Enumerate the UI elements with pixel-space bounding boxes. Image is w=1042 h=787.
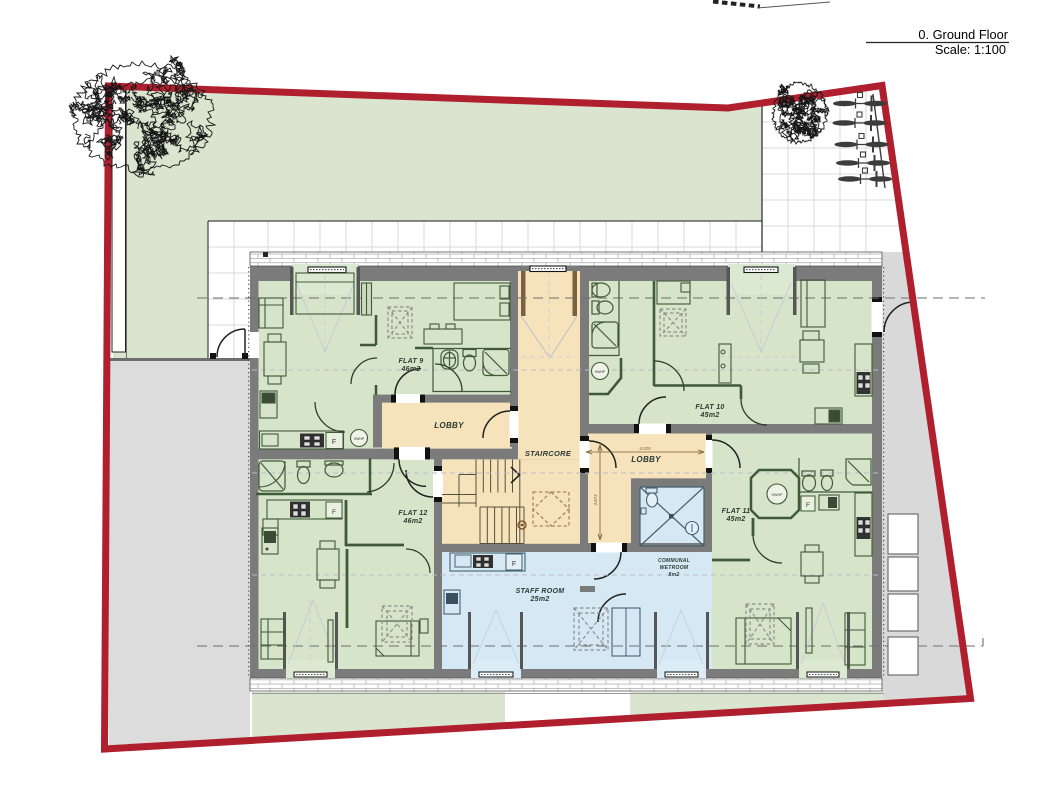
svg-text:LOBBY: LOBBY <box>434 421 464 430</box>
svg-text:HWHP: HWHP <box>772 493 784 497</box>
svg-text:FLAT 9: FLAT 9 <box>398 358 423 365</box>
svg-text:F: F <box>512 561 516 568</box>
svg-text:Scale: 1:100: Scale: 1:100 <box>935 42 1006 57</box>
svg-text:HWHP: HWHP <box>595 370 606 374</box>
svg-text:LOBBY: LOBBY <box>631 455 661 464</box>
svg-text:F: F <box>806 502 810 509</box>
svg-text:0. Ground Floor: 0. Ground Floor <box>918 27 1008 42</box>
svg-text:46m2: 46m2 <box>400 366 420 373</box>
svg-text:STAIRCORE: STAIRCORE <box>525 449 572 458</box>
svg-text:STAFF ROOM: STAFF ROOM <box>516 588 565 595</box>
svg-text:3.874: 3.874 <box>593 494 598 506</box>
svg-text:FLAT 11: FLAT 11 <box>722 508 751 515</box>
svg-text:8m2: 8m2 <box>669 572 680 578</box>
svg-text:45m2: 45m2 <box>725 516 745 523</box>
svg-text:HWHP: HWHP <box>354 437 365 441</box>
svg-text:COMMUNAL: COMMUNAL <box>658 558 690 564</box>
svg-text:F: F <box>332 439 336 446</box>
svg-text:4.025: 4.025 <box>639 446 651 451</box>
svg-text:F: F <box>332 509 336 516</box>
svg-text:46m2: 46m2 <box>402 518 422 525</box>
svg-text:45m2: 45m2 <box>699 412 719 419</box>
svg-text:25m2: 25m2 <box>529 596 549 603</box>
svg-text:FLAT 12: FLAT 12 <box>398 510 427 517</box>
svg-text:WETROOM: WETROOM <box>660 565 689 571</box>
svg-text:FLAT 10: FLAT 10 <box>695 404 724 411</box>
